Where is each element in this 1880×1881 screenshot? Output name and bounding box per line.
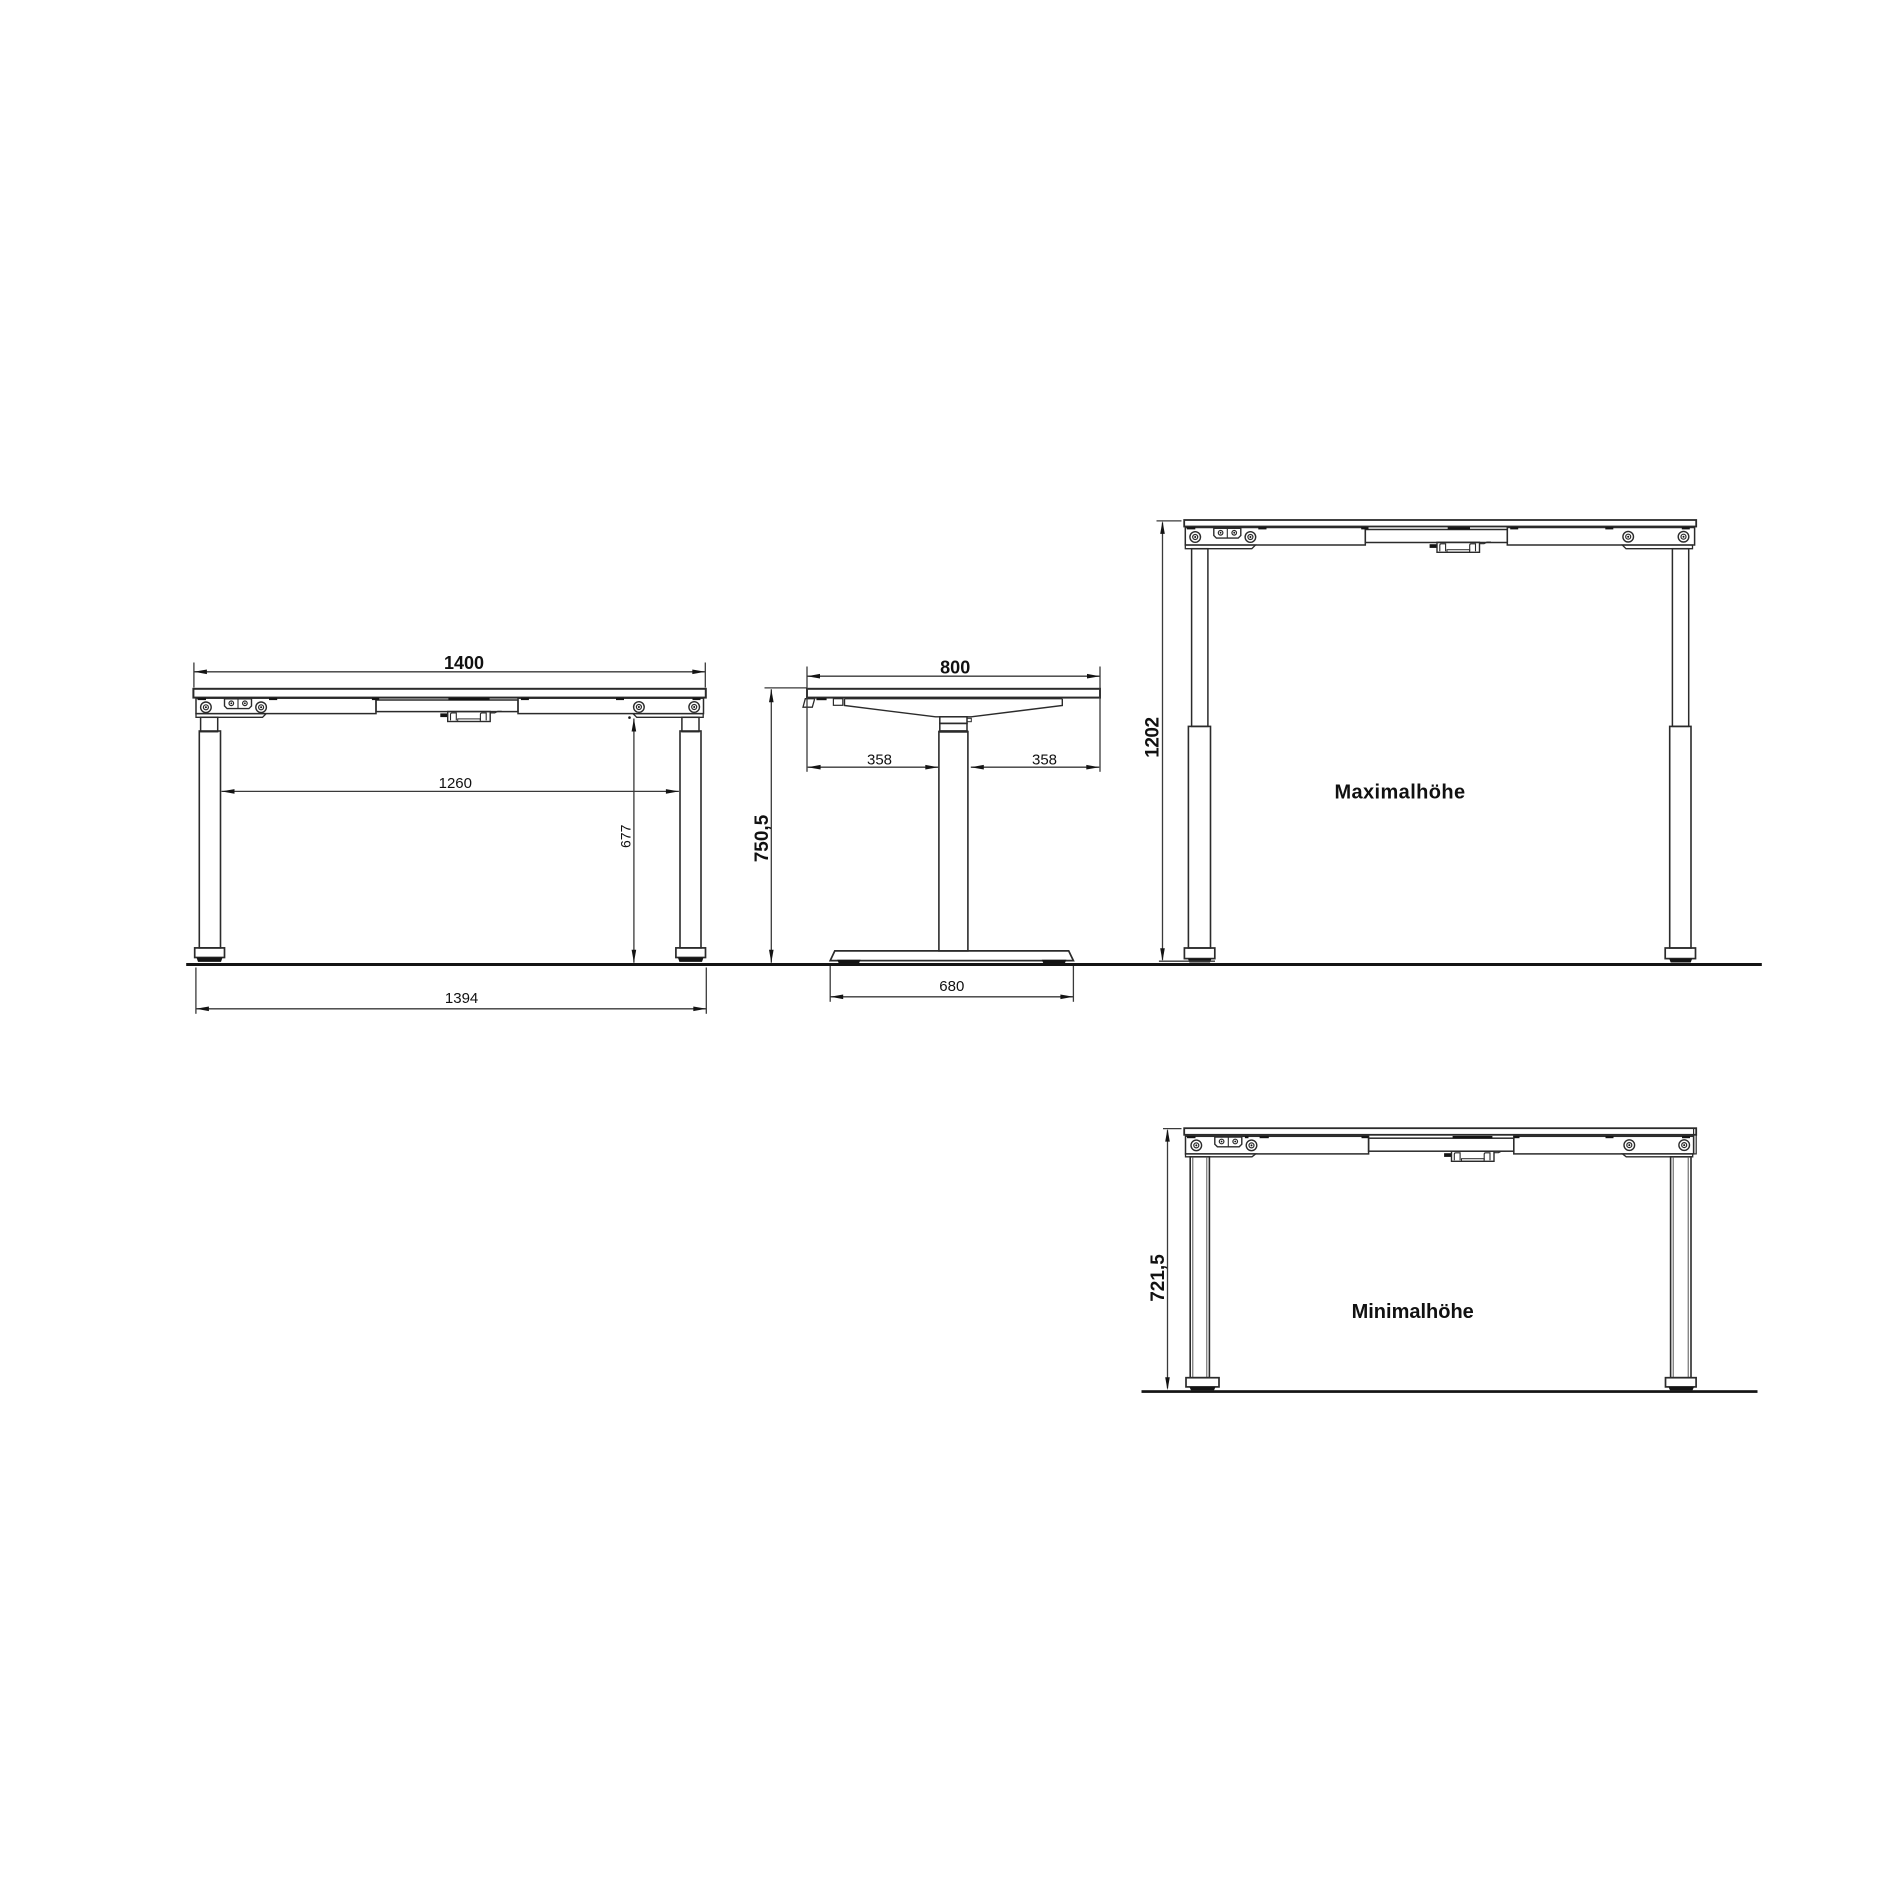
svg-text:680: 680: [939, 978, 964, 995]
svg-text:1260: 1260: [439, 775, 472, 792]
svg-text:Minimalhöhe: Minimalhöhe: [1352, 1301, 1474, 1323]
svg-text:800: 800: [940, 657, 970, 677]
svg-text:1394: 1394: [445, 990, 478, 1007]
svg-text:750,5: 750,5: [752, 814, 773, 862]
svg-text:358: 358: [1032, 752, 1057, 769]
svg-text:Maximalhöhe: Maximalhöhe: [1334, 781, 1465, 803]
svg-text:1202: 1202: [1143, 717, 1164, 757]
svg-text:677: 677: [618, 824, 634, 848]
svg-text:1400: 1400: [444, 653, 484, 673]
svg-text:358: 358: [867, 752, 892, 769]
svg-text:721,5: 721,5: [1148, 1254, 1169, 1302]
